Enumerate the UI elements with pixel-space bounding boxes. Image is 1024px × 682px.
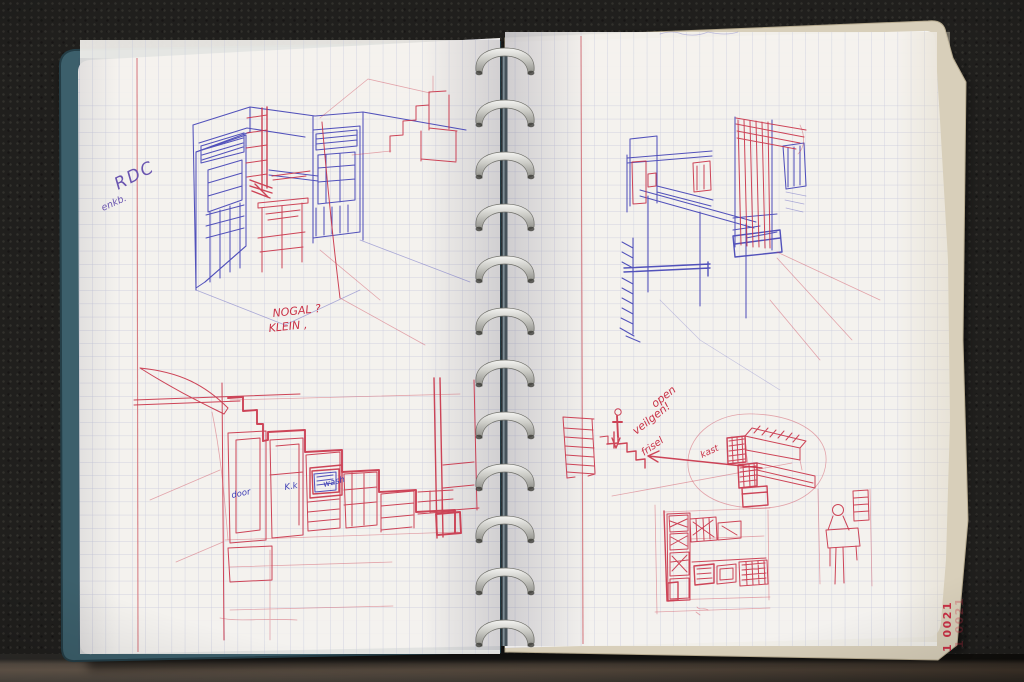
left-page — [78, 38, 500, 654]
notebook: RDC enkb. NOGAL ? KLEIN , open veilgen! … — [0, 0, 1024, 682]
page-number-ghost: 1 0021 — [953, 597, 966, 648]
right-page — [505, 31, 950, 648]
binder-spine — [502, 48, 508, 646]
notebook-photo: RDC enkb. NOGAL ? KLEIN , open veilgen! … — [0, 0, 1024, 682]
